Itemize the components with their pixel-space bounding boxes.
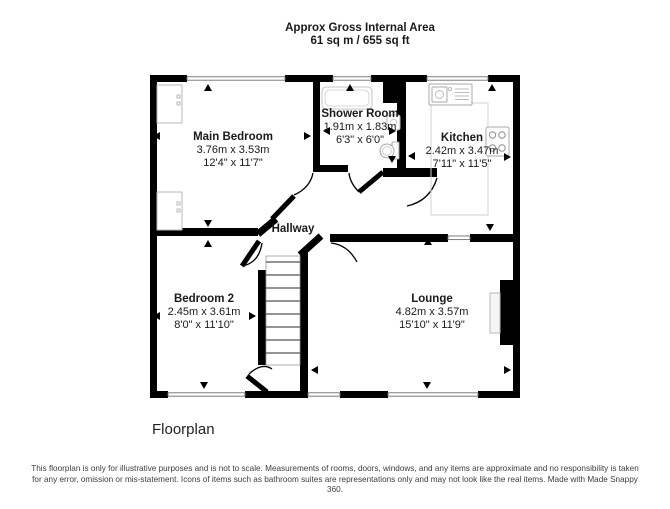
measure-arrow-icon (200, 382, 208, 389)
room-label-bedroom-2: Bedroom 2 2.45m x 3.61m 8'0" x 11'10" (168, 293, 241, 332)
room-label-shower-room: Shower Room 1.91m x 1.83m 6'3" x 6'0" (321, 108, 398, 147)
measure-arrow-icon (204, 240, 212, 247)
room-dims-metric: 2.42m x 3.47m (426, 145, 499, 158)
room-dims-imperial: 8'0" x 11'10" (168, 319, 241, 332)
room-dims-metric: 2.45m x 3.61m (168, 306, 241, 319)
stairs-icon (266, 256, 300, 365)
room-name: Main Bedroom (193, 131, 273, 144)
door-arc-icon (272, 173, 313, 219)
room-name: Shower Room (321, 108, 398, 121)
room-dims-imperial: 7'11" x 11'5" (426, 158, 499, 171)
measure-arrow-icon (311, 366, 318, 374)
measure-arrow-icon (204, 84, 212, 91)
measure-arrow-icon (249, 312, 256, 320)
door-arc-icon (242, 241, 262, 266)
door-arc-icon (349, 172, 383, 192)
measure-arrow-icon (304, 132, 311, 140)
room-dims-metric: 4.82m x 3.57m (396, 306, 469, 319)
room-name: Hallway (272, 223, 315, 236)
wardrobe-icon (157, 192, 182, 230)
window-icon (308, 391, 340, 398)
window-icon (187, 75, 285, 82)
room-name: Bedroom 2 (168, 293, 241, 306)
fireplace-icon (490, 293, 500, 333)
room-label-hallway: Hallway (272, 223, 315, 236)
window-icon (427, 75, 488, 82)
room-dims-metric: 1.91m x 1.83m (321, 121, 398, 134)
room-name: Lounge (396, 293, 469, 306)
room-dims-imperial: 12'4" x 11'7" (193, 157, 273, 170)
door-arc-icon (331, 243, 357, 262)
measure-arrow-icon (423, 382, 431, 389)
door-arc-icon (407, 178, 437, 206)
measure-arrow-icon (488, 84, 496, 91)
wardrobe-icon (157, 85, 182, 123)
floorplan-caption: Floorplan (152, 421, 215, 438)
window-icon (388, 391, 478, 398)
room-label-kitchen: Kitchen 2.42m x 3.47m 7'11" x 11'5" (426, 132, 499, 171)
floorplan-page: Approx Gross Internal Area 61 sq m / 655… (0, 0, 670, 509)
door-arc-icon (247, 366, 272, 392)
measure-arrow-icon (408, 152, 415, 160)
room-label-main-bedroom: Main Bedroom 3.76m x 3.53m 12'4" x 11'7" (193, 131, 273, 170)
room-dims-imperial: 6'3" x 6'0" (321, 134, 398, 147)
window-icon (448, 234, 470, 242)
measure-arrow-icon (486, 224, 494, 231)
room-name: Kitchen (426, 132, 499, 145)
floorplan-drawing (0, 0, 670, 509)
room-label-lounge: Lounge 4.82m x 3.57m 15'10" x 11'9" (396, 293, 469, 332)
window-icon (333, 75, 371, 82)
measure-arrow-icon (204, 220, 212, 227)
measure-arrow-icon (504, 366, 511, 374)
disclaimer-text: This floorplan is only for illustrative … (28, 464, 642, 496)
room-dims-metric: 3.76m x 3.53m (193, 144, 273, 157)
window-icon (168, 391, 245, 398)
sink-icon (429, 84, 472, 105)
room-dims-imperial: 15'10" x 11'9" (396, 319, 469, 332)
